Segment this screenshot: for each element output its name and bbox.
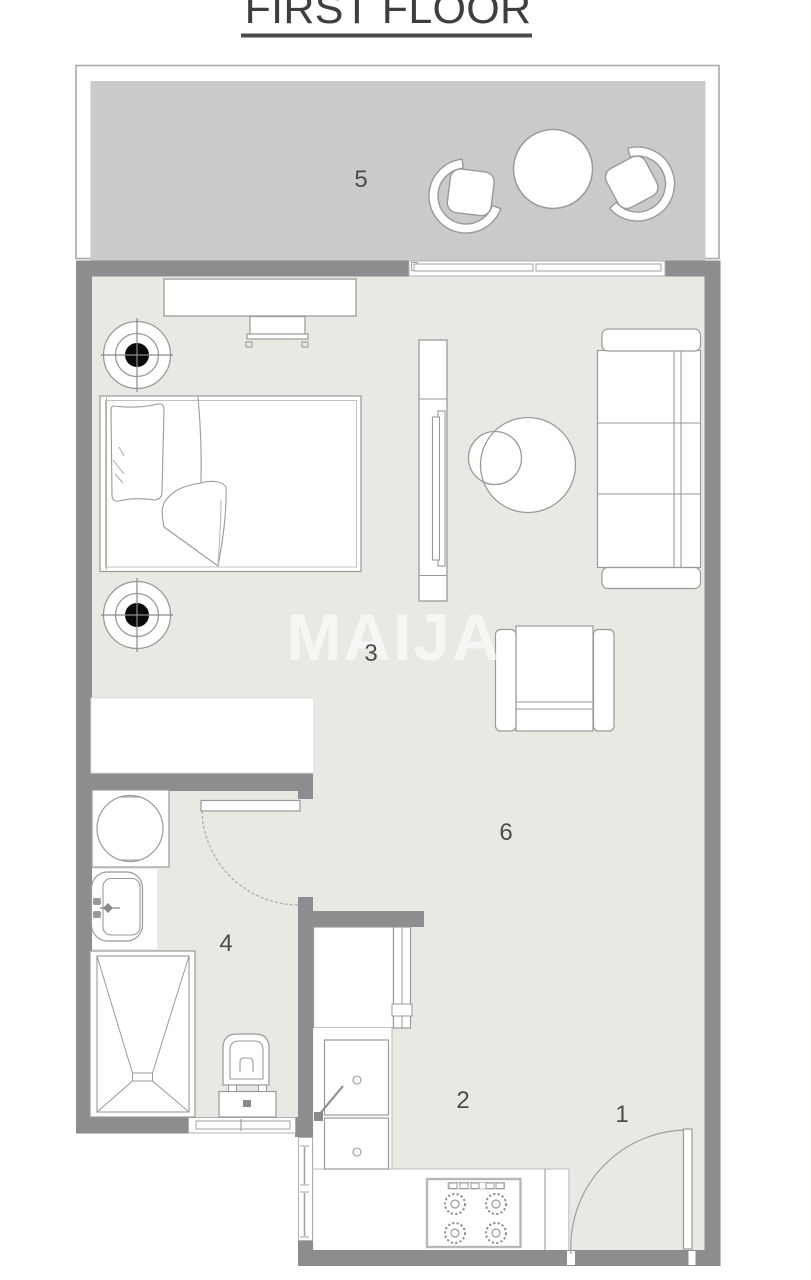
svg-text:4: 4 bbox=[219, 930, 232, 957]
svg-text:1: 1 bbox=[615, 1101, 628, 1128]
svg-text:5: 5 bbox=[354, 166, 367, 193]
svg-text:3: 3 bbox=[364, 640, 377, 667]
svg-text:FIRST FLOOR: FIRST FLOOR bbox=[245, 0, 532, 33]
svg-text:6: 6 bbox=[499, 819, 512, 846]
svg-text:2: 2 bbox=[456, 1087, 469, 1114]
svg-text:MAIJA: MAIJA bbox=[286, 600, 501, 674]
